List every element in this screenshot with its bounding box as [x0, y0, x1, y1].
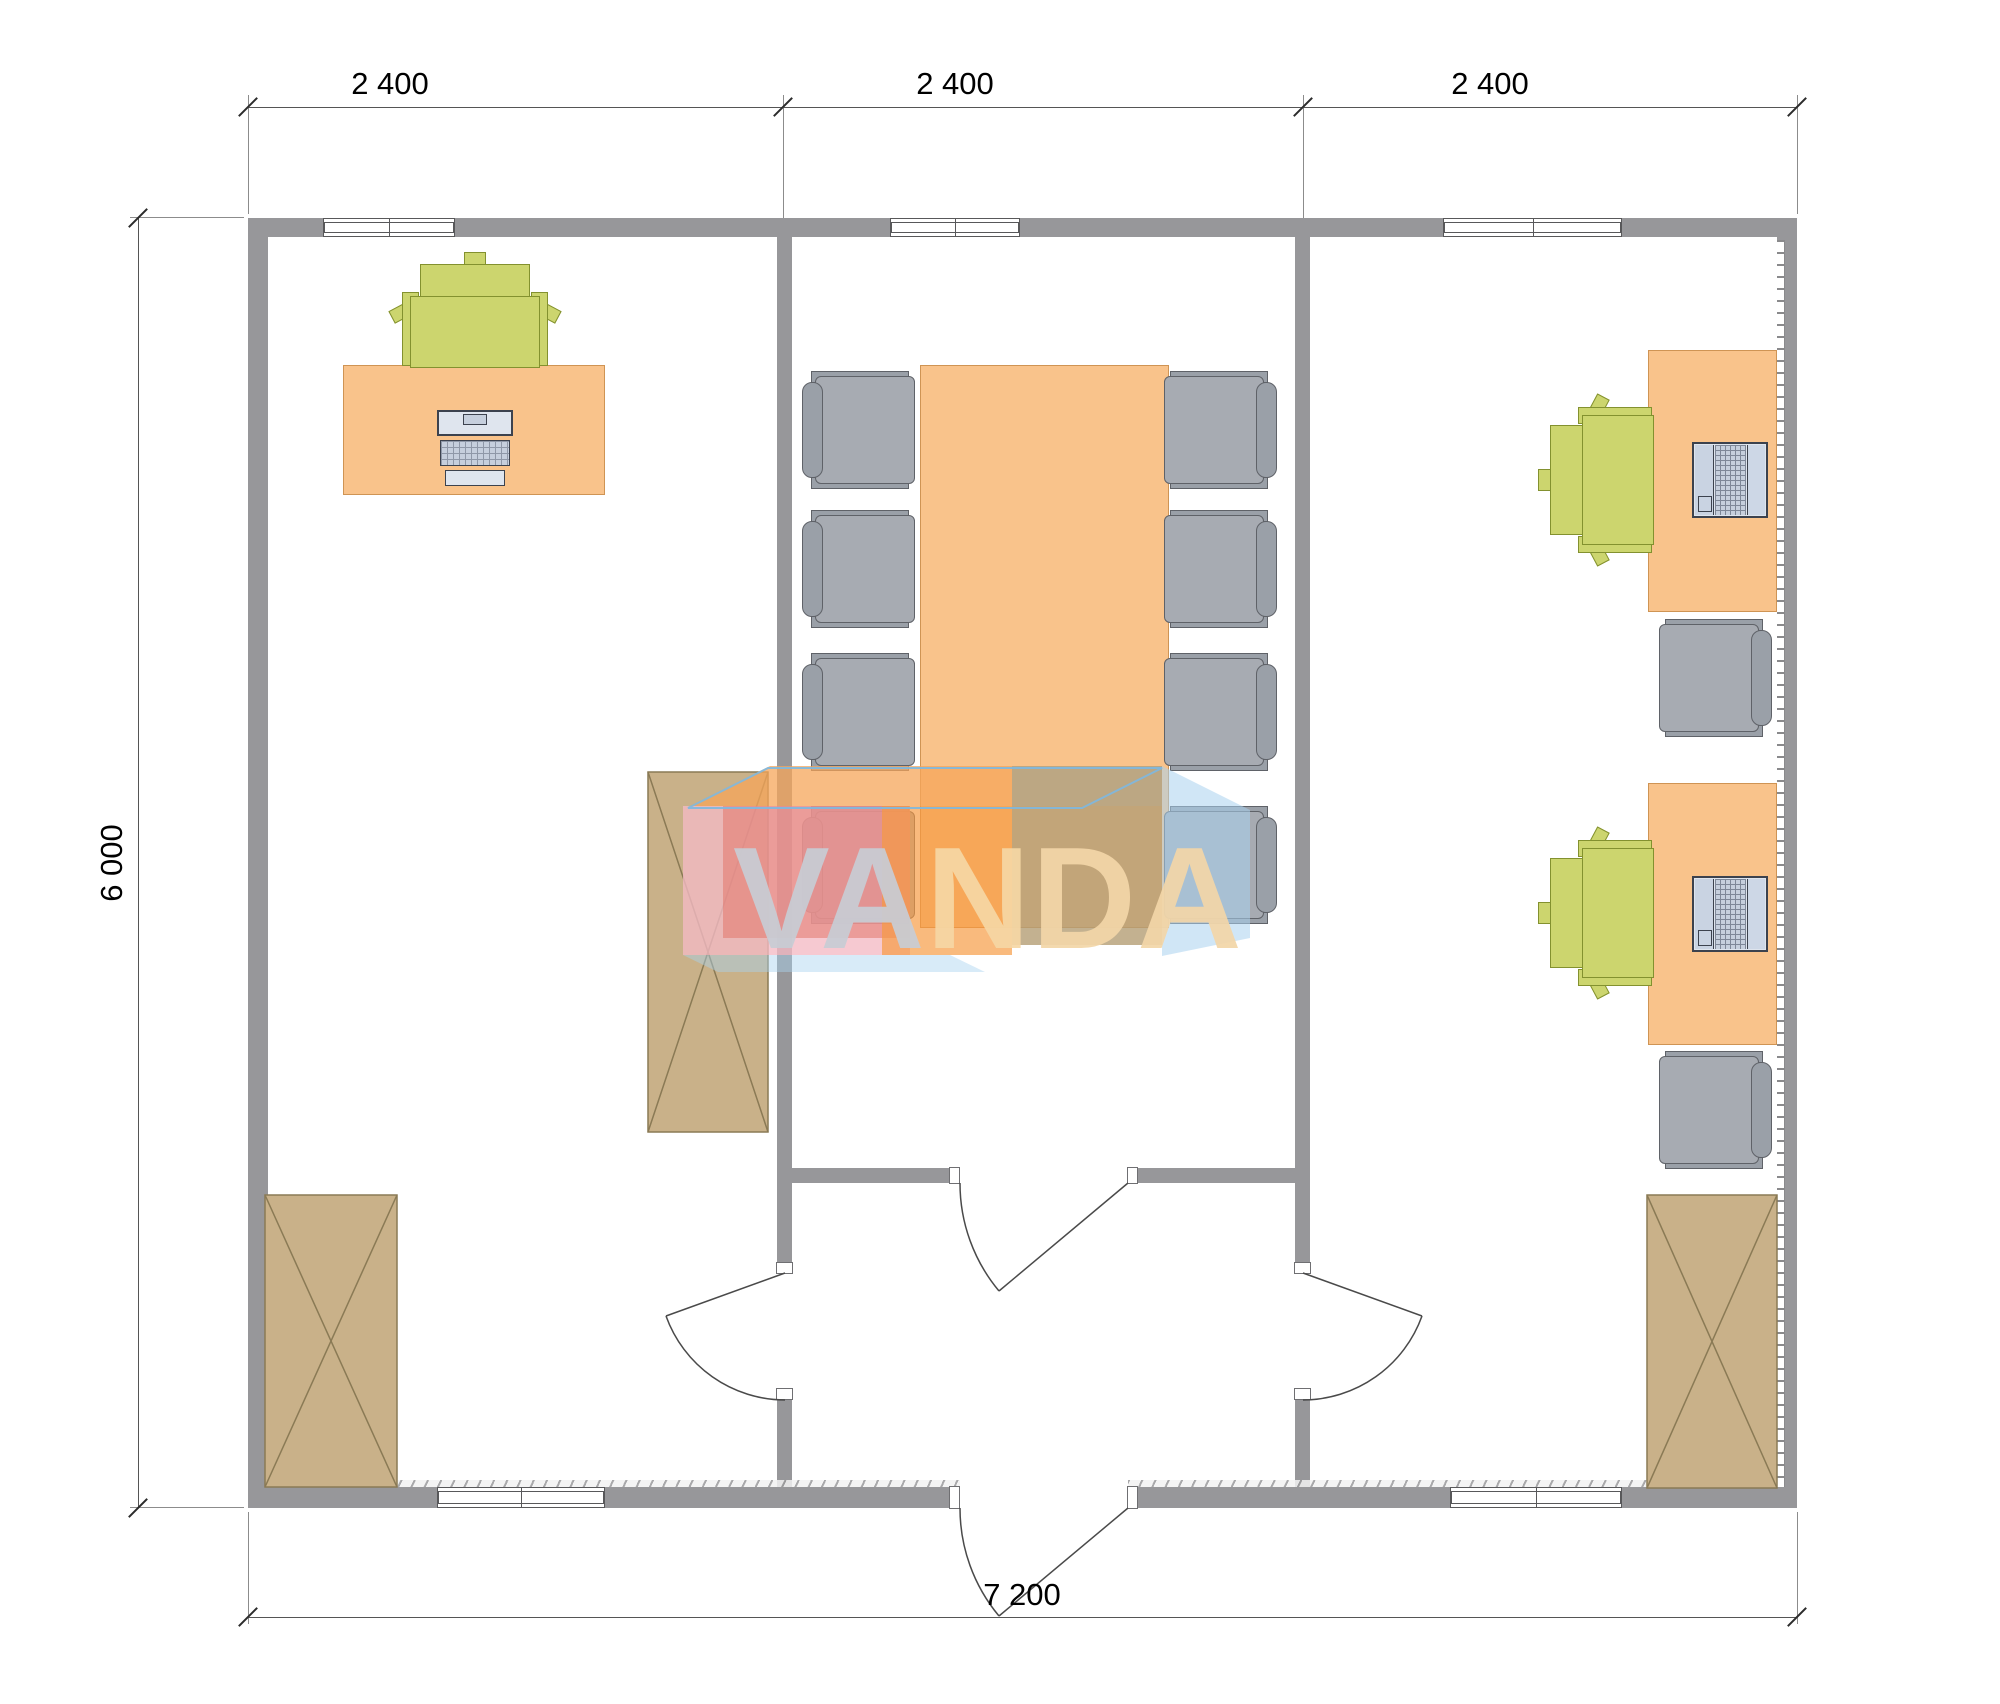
dimension-label-left: 6 000 [94, 763, 130, 963]
extension-line [130, 217, 244, 218]
watermark-text: VANDA [733, 817, 1243, 979]
dimension-line-top [248, 107, 1797, 108]
extension-line [1797, 1512, 1798, 1624]
floor-plan-canvas: VANDA 2 400 2 400 2 400 6 000 7 200 [0, 0, 2000, 1704]
extension-line [248, 95, 249, 214]
dimension-label-top-2: 2 400 [865, 66, 1045, 102]
vanda-watermark: VANDA [0, 0, 2000, 1704]
extension-line [783, 95, 784, 218]
dimension-line-bottom [248, 1617, 1797, 1618]
dimension-line-left [138, 217, 139, 1508]
dimension-label-top-1: 2 400 [300, 66, 480, 102]
extension-line [130, 1507, 244, 1508]
extension-line [1303, 95, 1304, 218]
dimension-label-bottom: 7 200 [932, 1577, 1112, 1613]
dimension-label-top-3: 2 400 [1400, 66, 1580, 102]
extension-line [1797, 95, 1798, 214]
extension-line [248, 1512, 249, 1624]
